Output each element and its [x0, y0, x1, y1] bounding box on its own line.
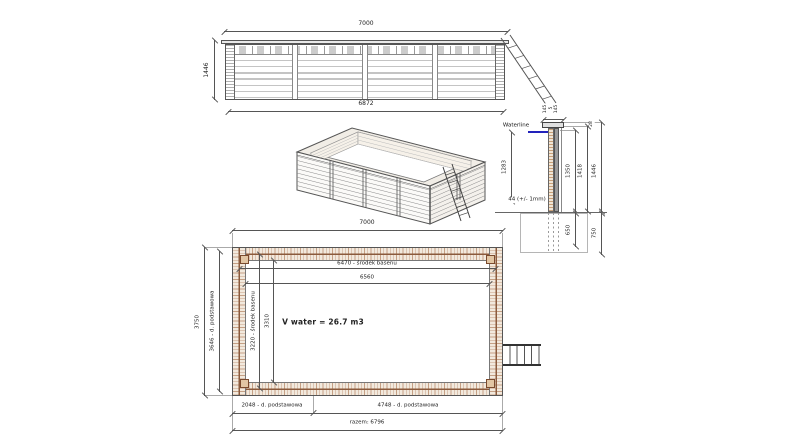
section-hidden-line: [553, 213, 554, 253]
section-dim-line-1418: [587, 126, 588, 212]
elevation-dim-line-bottom: [228, 111, 504, 112]
plan-dim-inner-h: 6560: [359, 275, 375, 281]
plan-dim-line-3220: [259, 254, 260, 389]
isometric-view: [297, 128, 485, 224]
elevation-mid-post: [432, 45, 438, 99]
plan-dim-outer-v: 3750: [195, 314, 201, 330]
section-dim-offset-top: 28: [590, 120, 595, 128]
plan-wall-bottom: [233, 382, 502, 395]
section-ext-line: [564, 122, 601, 123]
section-ext-line: [562, 126, 587, 127]
plan-volume-note: V water = 26.7 m3: [281, 318, 365, 326]
plan-dim-inner-center-h: 6470 - środek basenu: [336, 261, 398, 267]
section-hidden-line: [548, 213, 549, 253]
section-dim-height-inner: 1350: [566, 163, 572, 179]
section-dim-line-water-depth: [511, 132, 512, 202]
section-dim-footing-outer: 750: [592, 227, 598, 240]
plan-ext-line: [205, 247, 232, 248]
plan-corner-post: [240, 379, 249, 388]
section-ext-line: [560, 130, 575, 131]
plan-dim-label-top: 7000: [358, 220, 375, 226]
section-hidden-line: [558, 213, 559, 253]
section-dim-height-mid: 1418: [578, 163, 584, 179]
plan-dim-line-total: [232, 430, 503, 431]
plan-corner-post: [240, 255, 249, 264]
elevation-dim-line-top: [224, 31, 508, 32]
section-dim-line-1446: [601, 122, 602, 212]
elevation-right-post: [495, 45, 504, 99]
plan-ext-line: [205, 395, 232, 396]
section-post-edge: [561, 128, 562, 212]
plan-dim-base-right: 4748 - d. podstawowa: [377, 403, 440, 409]
section-dim-line-cap: [543, 119, 564, 120]
plan-dim-line-base: [232, 413, 503, 414]
elevation-dim-label-bottom: 6872: [357, 101, 374, 107]
section-dim-line-650: [575, 213, 576, 247]
waterline-label: Waterline: [502, 123, 530, 129]
elevation-left-post: [226, 45, 235, 99]
plan-dim-line-top: [232, 230, 503, 231]
elevation-ladder-icon: [501, 35, 556, 106]
elevation-pool-body: [225, 44, 505, 100]
section-dim-footing-inner: 650: [566, 224, 572, 237]
plan-ext-line: [502, 233, 503, 247]
plan-ext-line: [232, 233, 233, 247]
elevation-dim-label-top: 7000: [357, 21, 374, 27]
section-plank-note: 44 (+/- 1mm): [507, 197, 546, 203]
plan-dim-total: razem: 6796: [349, 420, 386, 426]
plan-wall-right: [489, 248, 502, 395]
plan-dim-base-left: 2048 - d. podstawowa: [241, 403, 304, 409]
plan-dim-inner-v: 3310: [265, 313, 271, 329]
plan-dim-line-3646: [219, 251, 220, 392]
elevation-mid-post: [292, 45, 298, 99]
plan-corner-post: [486, 379, 495, 388]
elevation-dim-line-left: [214, 40, 215, 100]
elevation-dim-label-left: 1446: [204, 61, 210, 78]
plan-dim-line-6560: [245, 283, 490, 284]
section-dim-line-750: [601, 213, 602, 255]
section-dim-height-outer: 1446: [592, 163, 598, 179]
plan-ladder: [503, 344, 541, 366]
section-dim-line-1350: [575, 130, 576, 212]
elevation-mid-post: [362, 45, 368, 99]
drawing-canvas: 7000 1446 6872 Waterline 145 5 145 28 12…: [0, 0, 794, 446]
plan-dim-base-v: 3646 - d. podstawowa: [210, 290, 216, 353]
plan-dim-inner-center-v: 3220 - środek basenu: [251, 290, 257, 352]
waterline-marker: [528, 131, 548, 133]
section-dim-cap-right: 145: [555, 104, 560, 115]
section-dim-cap-left: 145: [544, 104, 549, 115]
section-dim-water-depth: 1283: [502, 159, 508, 175]
plan-dim-line-3310: [273, 260, 274, 383]
plan-dim-line-6470: [239, 268, 496, 269]
plan-dim-line-3750: [204, 247, 205, 396]
plan-corner-post: [486, 255, 495, 264]
section-support-post: [554, 128, 559, 212]
